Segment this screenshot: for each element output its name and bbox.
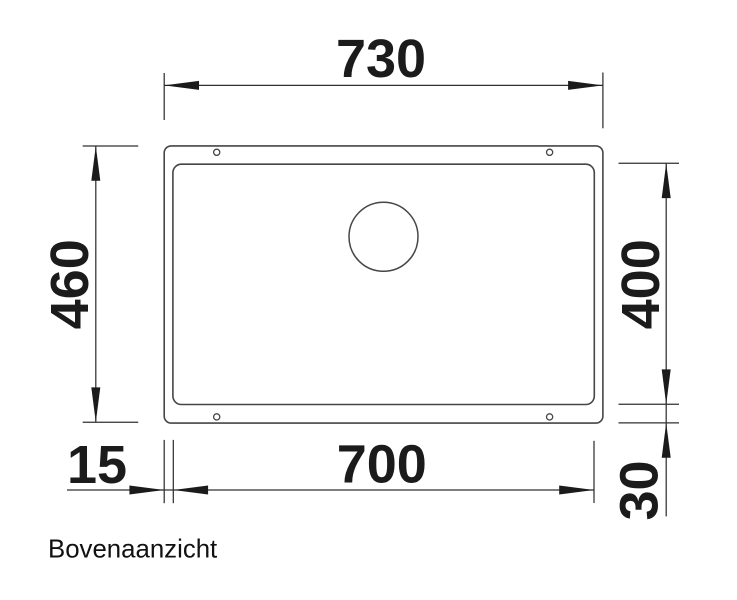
svg-text:700: 700 — [337, 435, 427, 495]
svg-text:400: 400 — [611, 239, 671, 329]
svg-text:730: 730 — [336, 29, 426, 89]
svg-text:Bovenaanzicht: Bovenaanzicht — [48, 536, 217, 564]
svg-text:30: 30 — [610, 460, 670, 520]
svg-text:460: 460 — [40, 239, 100, 329]
svg-text:15: 15 — [67, 435, 127, 495]
